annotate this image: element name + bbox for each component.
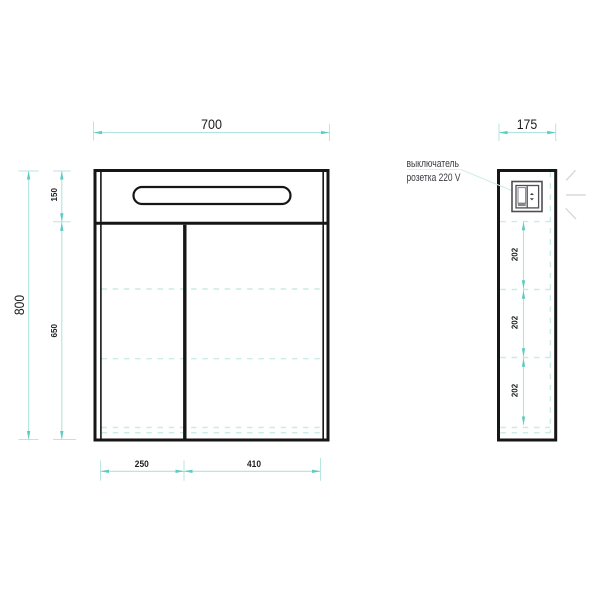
svg-text:800: 800 (12, 295, 27, 315)
svg-text:250: 250 (135, 459, 149, 469)
svg-text:202: 202 (510, 315, 519, 329)
svg-text:700: 700 (201, 116, 222, 132)
svg-text:202: 202 (510, 383, 519, 397)
svg-text:202: 202 (510, 247, 519, 261)
svg-text:650: 650 (49, 324, 59, 338)
svg-text:150: 150 (49, 188, 59, 202)
svg-text:175: 175 (517, 116, 538, 132)
svg-text:410: 410 (247, 459, 261, 469)
svg-text:розетка 220 V: розетка 220 V (407, 172, 462, 184)
svg-text:выключатель: выключатель (407, 158, 460, 170)
